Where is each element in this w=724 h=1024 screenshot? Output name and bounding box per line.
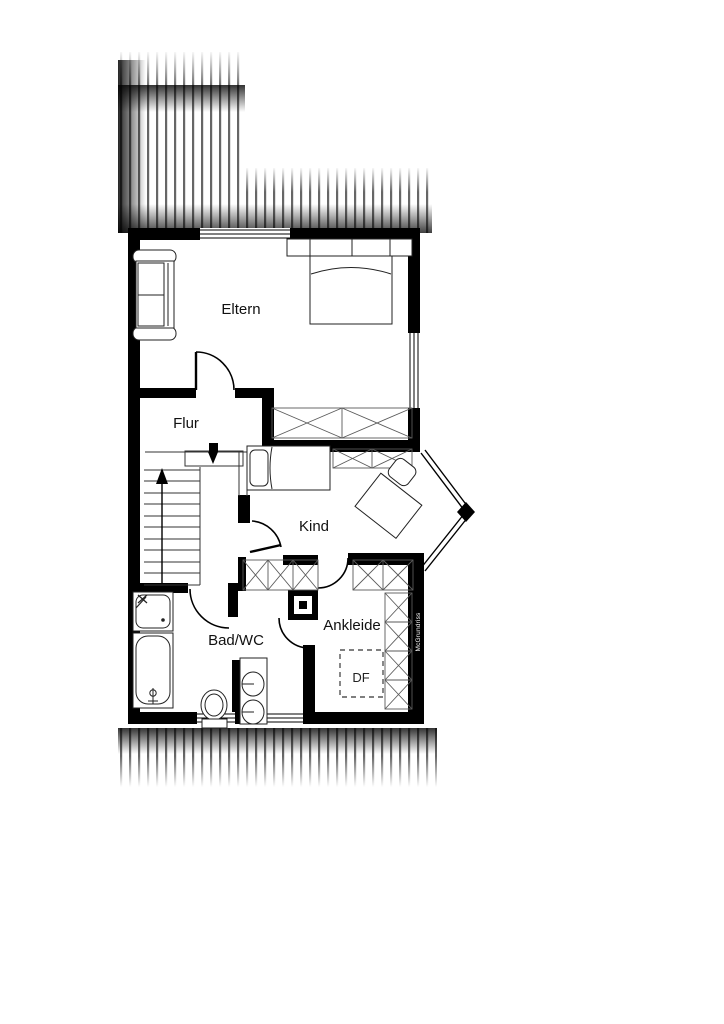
- watermark-text: McGrundriss: [415, 612, 422, 652]
- double-bed: [287, 239, 412, 324]
- room-label-kind: Kind: [299, 518, 329, 535]
- room-label-bad: Bad/WC: [208, 632, 264, 649]
- roof-hatch-top-left: [118, 52, 245, 233]
- roof-hatch-top-right: [245, 168, 432, 233]
- room-label-flur: Flur: [173, 415, 199, 432]
- door-bad: [190, 589, 229, 628]
- wardrobe-eltern: [272, 408, 412, 438]
- kind-bed: [247, 446, 330, 490]
- door-ankleide: [318, 558, 348, 588]
- door-bad-ankleide: [279, 618, 309, 648]
- stairs: [144, 452, 250, 585]
- bay-window: [421, 450, 475, 571]
- floor-plan-page: Eltern Flur Kind Bad/WC Ankleide DF McGr…: [0, 0, 724, 1024]
- sofa: [133, 250, 176, 340]
- window-right: [408, 333, 420, 408]
- desk: [355, 473, 422, 538]
- door-eltern: [196, 352, 234, 390]
- room-label-eltern: Eltern: [221, 301, 260, 318]
- bathtub: [133, 633, 173, 708]
- door-kind: [250, 521, 281, 552]
- room-label-ankleide: Ankleide: [323, 617, 381, 634]
- roof-window-label: DF: [352, 670, 369, 685]
- toilet: [201, 690, 227, 728]
- shower: [133, 592, 173, 631]
- chimney-symbol: [288, 590, 318, 620]
- stairs-up-arrow-icon: [156, 468, 168, 584]
- floor-plan: Eltern Flur Kind Bad/WC Ankleide DF McGr…: [0, 0, 724, 1024]
- roof-hatch-bottom: [118, 728, 437, 787]
- window-top: [200, 228, 290, 240]
- stair-headroom-marker: [185, 443, 243, 466]
- wardrobe-ankleide-right: [385, 593, 412, 709]
- washbasin-double: [240, 658, 267, 724]
- desk-and-chair: [355, 454, 437, 539]
